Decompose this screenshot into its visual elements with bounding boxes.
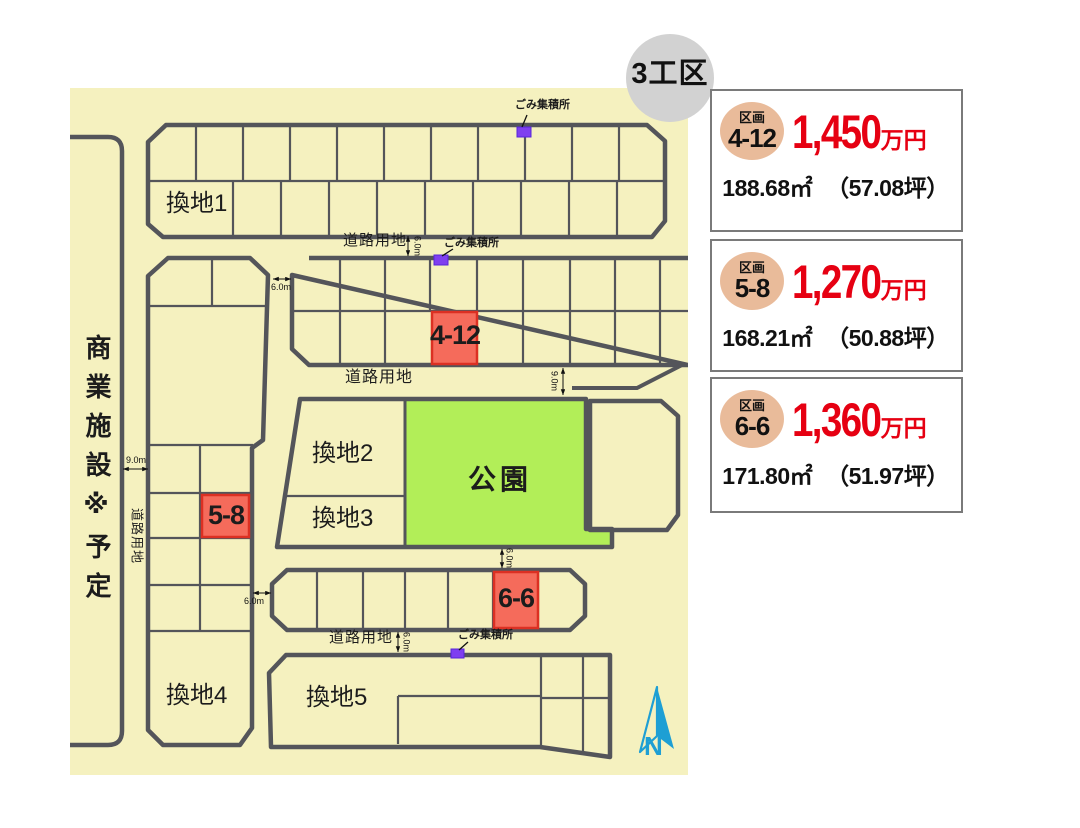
road-land-label: 道路用地 xyxy=(343,233,407,248)
commercial-facility-label: 商業施設※予定 xyxy=(84,334,110,611)
lot-circle: 区画 5-8 xyxy=(720,252,784,310)
price-card-5-8: 区画 5-8 1,270 万円 168.21㎡ （50.88坪） xyxy=(710,239,963,372)
plot-label-kanchi3: 換地3 xyxy=(312,507,373,531)
price-card-row: 区画 6-6 1,360 万円 xyxy=(720,390,951,448)
site-plan-geometry xyxy=(70,88,688,775)
price-value: 1,360 xyxy=(792,392,880,447)
price-unit: 万円 xyxy=(881,409,927,443)
price: 1,360 万円 xyxy=(792,392,927,447)
garbage-station-label: ごみ集積所 xyxy=(444,238,499,249)
garbage-marker-icon xyxy=(517,127,531,137)
area-tsubo: （51.97坪） xyxy=(826,457,949,491)
garbage-station-label: ごみ集積所 xyxy=(458,630,513,641)
price: 1,450 万円 xyxy=(792,104,927,159)
dimension-9m: 9.0m xyxy=(126,456,146,465)
area-m2: 188.68㎡ xyxy=(722,169,812,203)
plot-label-kanchi1: 換地1 xyxy=(166,192,227,216)
price-unit: 万円 xyxy=(881,121,927,155)
price-card-6-6: 区画 6-6 1,360 万円 171.80㎡ （51.97坪） xyxy=(710,377,963,513)
road-land-label: 道路用地 xyxy=(345,370,413,386)
lot-circle: 区画 4-12 xyxy=(720,102,784,160)
north-label: N xyxy=(644,733,663,759)
price-value: 1,450 xyxy=(792,104,880,159)
dimension-6m: 6.0m xyxy=(271,283,291,292)
area: 168.21㎡ （50.88坪） xyxy=(720,319,951,353)
price-card-4-12: 区画 4-12 1,450 万円 188.68㎡ （57.08坪） xyxy=(710,89,963,232)
lot-number: 4-12 xyxy=(728,125,776,151)
lot-number: 6-6 xyxy=(735,413,770,439)
dimension-6m: 6.0m xyxy=(402,632,411,652)
area-tsubo: （50.88坪） xyxy=(826,319,949,353)
lot-number-4-12: 4-12 xyxy=(430,322,480,349)
lot-circle: 区画 6-6 xyxy=(720,390,784,448)
plot-label-kanchi5: 換地5 xyxy=(306,686,367,710)
lot-number-6-6: 6-6 xyxy=(498,585,534,612)
garbage-marker-icon xyxy=(451,649,464,658)
price-card-row: 区画 5-8 1,270 万円 xyxy=(720,252,951,310)
dimension-9m: 9.0m xyxy=(550,371,559,391)
area-tsubo: （57.08坪） xyxy=(826,169,949,203)
garbage-station-label: ごみ集積所 xyxy=(515,100,570,111)
dimension-6m: 6.0m xyxy=(244,597,264,606)
section-badge: 3工区 xyxy=(626,34,714,122)
area-m2: 171.80㎡ xyxy=(722,457,812,491)
dimension-6m: 6.0m xyxy=(413,236,422,256)
area: 171.80㎡ （51.97坪） xyxy=(720,457,951,491)
area: 188.68㎡ （57.08坪） xyxy=(720,169,951,203)
plot-label-kanchi4: 換地4 xyxy=(166,684,227,708)
price-value: 1,270 xyxy=(792,254,880,309)
lot-number-5-8: 5-8 xyxy=(208,502,244,529)
price-unit: 万円 xyxy=(881,271,927,305)
map-ground xyxy=(70,88,688,775)
plot-label-kanchi2: 換地2 xyxy=(312,442,373,466)
price-card-row: 区画 4-12 1,450 万円 xyxy=(720,102,951,160)
area-m2: 168.21㎡ xyxy=(722,319,812,353)
price: 1,270 万円 xyxy=(792,254,927,309)
garbage-marker-icon xyxy=(434,255,448,265)
dimension-6m: 6.0m xyxy=(505,548,514,568)
road-land-label: 道路用地 xyxy=(329,630,393,645)
lot-number: 5-8 xyxy=(735,275,770,301)
park-label: 公園 xyxy=(468,466,532,494)
road-land-label-vertical: 道路用地 xyxy=(131,508,144,564)
